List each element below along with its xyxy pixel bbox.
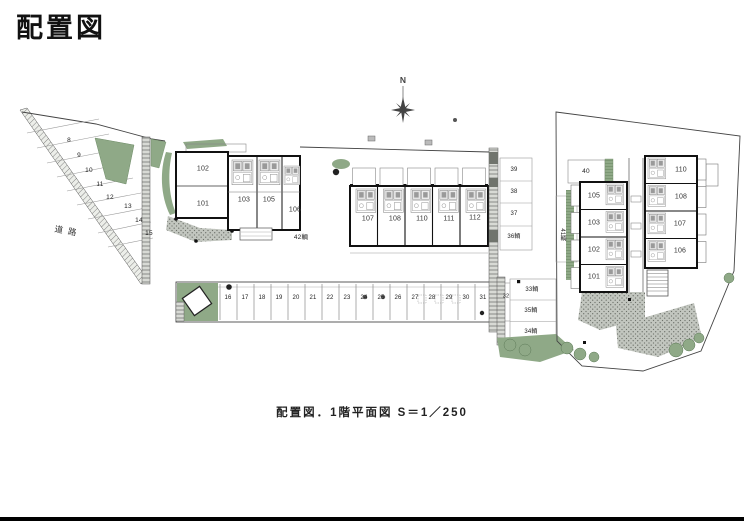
unit-number: 107: [362, 216, 374, 223]
parking-stall: 25: [377, 295, 384, 301]
east-lot: [556, 112, 740, 371]
landscape-strip: [605, 159, 613, 183]
page-title: 配置図: [16, 6, 106, 45]
landscape-area: [162, 152, 176, 215]
parking-stall: 28: [428, 295, 435, 301]
unit-number: 102: [197, 166, 209, 173]
parking-stall: 21: [309, 295, 316, 301]
parking-stall: 13: [124, 204, 132, 211]
unit-number: 103: [588, 220, 600, 227]
landscape-area: [95, 138, 134, 184]
west-building: [162, 139, 300, 243]
north-compass-icon: [391, 86, 415, 123]
unit-number: 103: [238, 197, 250, 204]
boundary-wall-west: [142, 137, 150, 284]
site-plan-page: 配置図 配置図．1階平面図 S＝1／250 N 道路 8 9 10 11 12 …: [0, 0, 744, 521]
parking-stall: 37: [510, 211, 517, 217]
tree-symbol: [333, 169, 339, 175]
drawing-caption: 配置図．1階平面図 S＝1／250: [0, 404, 744, 420]
unit-number: 110: [416, 216, 428, 223]
parking-stall: 33輌: [525, 287, 538, 293]
unit-number: 102: [588, 247, 600, 254]
unit-number: 105: [588, 193, 600, 200]
unit-number: 110: [675, 167, 687, 174]
unit-number: 105: [263, 197, 275, 204]
parking-stall: 27: [411, 295, 418, 301]
parking-stall: 29: [445, 295, 452, 301]
parking-stall: 12: [106, 195, 114, 202]
parking-stall: 8: [67, 138, 71, 145]
parking-stall: 19: [275, 295, 282, 301]
unit-number: 112: [469, 215, 481, 222]
parking-stall: 30: [462, 295, 469, 301]
parking-stall: 34輌: [524, 329, 537, 335]
parking-stall: 35輌: [524, 308, 537, 314]
site-plan-drawing: [0, 0, 744, 521]
parking-stall: 10: [85, 168, 93, 175]
parking-stall: 11: [96, 182, 103, 189]
unit-number: 106: [289, 207, 301, 214]
parking-stall: 32: [503, 294, 510, 300]
parking-stall: 42輌: [294, 235, 308, 242]
parking-stall: 14: [135, 218, 143, 225]
unit-number: 111: [443, 216, 454, 223]
parking-stall: 31: [479, 295, 486, 301]
parking-stall: 24: [360, 295, 367, 301]
unit-number: 101: [197, 201, 209, 208]
unit-number: 101: [588, 274, 600, 281]
parking-stall: 41輌: [559, 228, 565, 241]
parking-stall: 15: [145, 231, 153, 238]
parking-stall: 17: [241, 295, 248, 301]
parking-stall: 40: [582, 169, 590, 176]
porches: [353, 168, 486, 186]
center-building: [300, 118, 489, 253]
parking-stall: 38: [510, 189, 517, 195]
parking-stall: 18: [258, 295, 265, 301]
drawing-frame-edge: [0, 517, 744, 521]
center-parking-row: [176, 282, 492, 322]
parking-stall: 36輌: [507, 234, 520, 240]
unit-number: 108: [675, 194, 687, 201]
parking-stall: 39: [510, 167, 517, 173]
north-label: N: [400, 75, 406, 85]
parking-stall: 23: [343, 295, 350, 301]
parking-stall: 16: [224, 295, 231, 301]
unit-number: 106: [674, 248, 686, 255]
unit-number: 108: [389, 216, 401, 223]
entrance-porch: [240, 228, 272, 240]
landscape-area: [332, 159, 350, 169]
parking-stall: 22: [326, 295, 333, 301]
stairs: [647, 270, 668, 296]
parking-stall: 20: [292, 295, 299, 301]
west-parking-lot: [20, 108, 166, 284]
unit-number: 107: [674, 221, 686, 228]
parking-stall: 9: [77, 153, 81, 160]
parking-stall: 26: [394, 295, 401, 301]
